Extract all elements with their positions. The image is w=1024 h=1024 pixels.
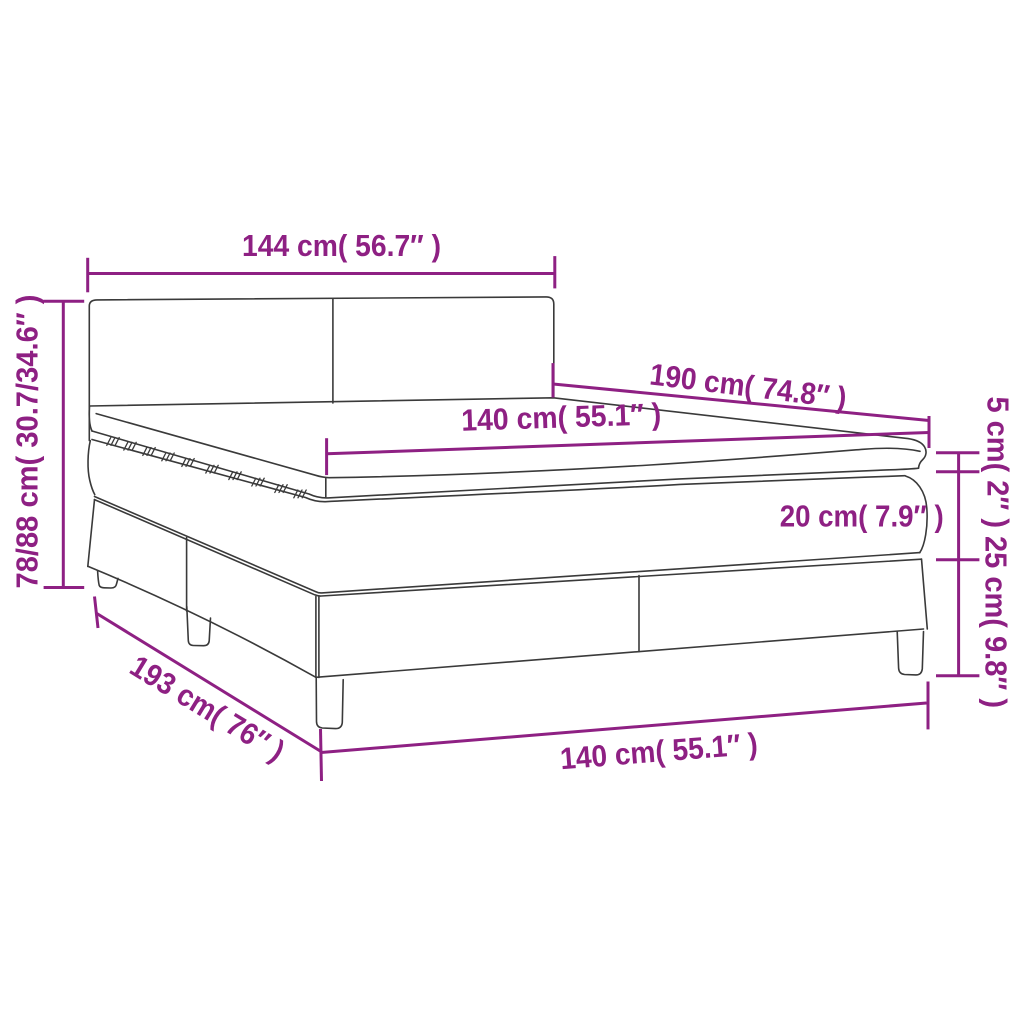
svg-text:78/88 cm( 30.7/34.6″ ): 78/88 cm( 30.7/34.6″ )	[11, 295, 45, 589]
svg-text:25 cm( 9.8″ ): 25 cm( 9.8″ )	[978, 536, 1012, 708]
svg-text:20 cm( 7.9″ ): 20 cm( 7.9″ )	[780, 500, 944, 534]
svg-text:144 cm( 56.7″ ): 144 cm( 56.7″ )	[242, 229, 441, 263]
svg-text:5 cm( 2″ ): 5 cm( 2″ )	[981, 397, 1015, 529]
svg-text:140 cm( 55.1″ ): 140 cm( 55.1″ )	[461, 397, 662, 438]
